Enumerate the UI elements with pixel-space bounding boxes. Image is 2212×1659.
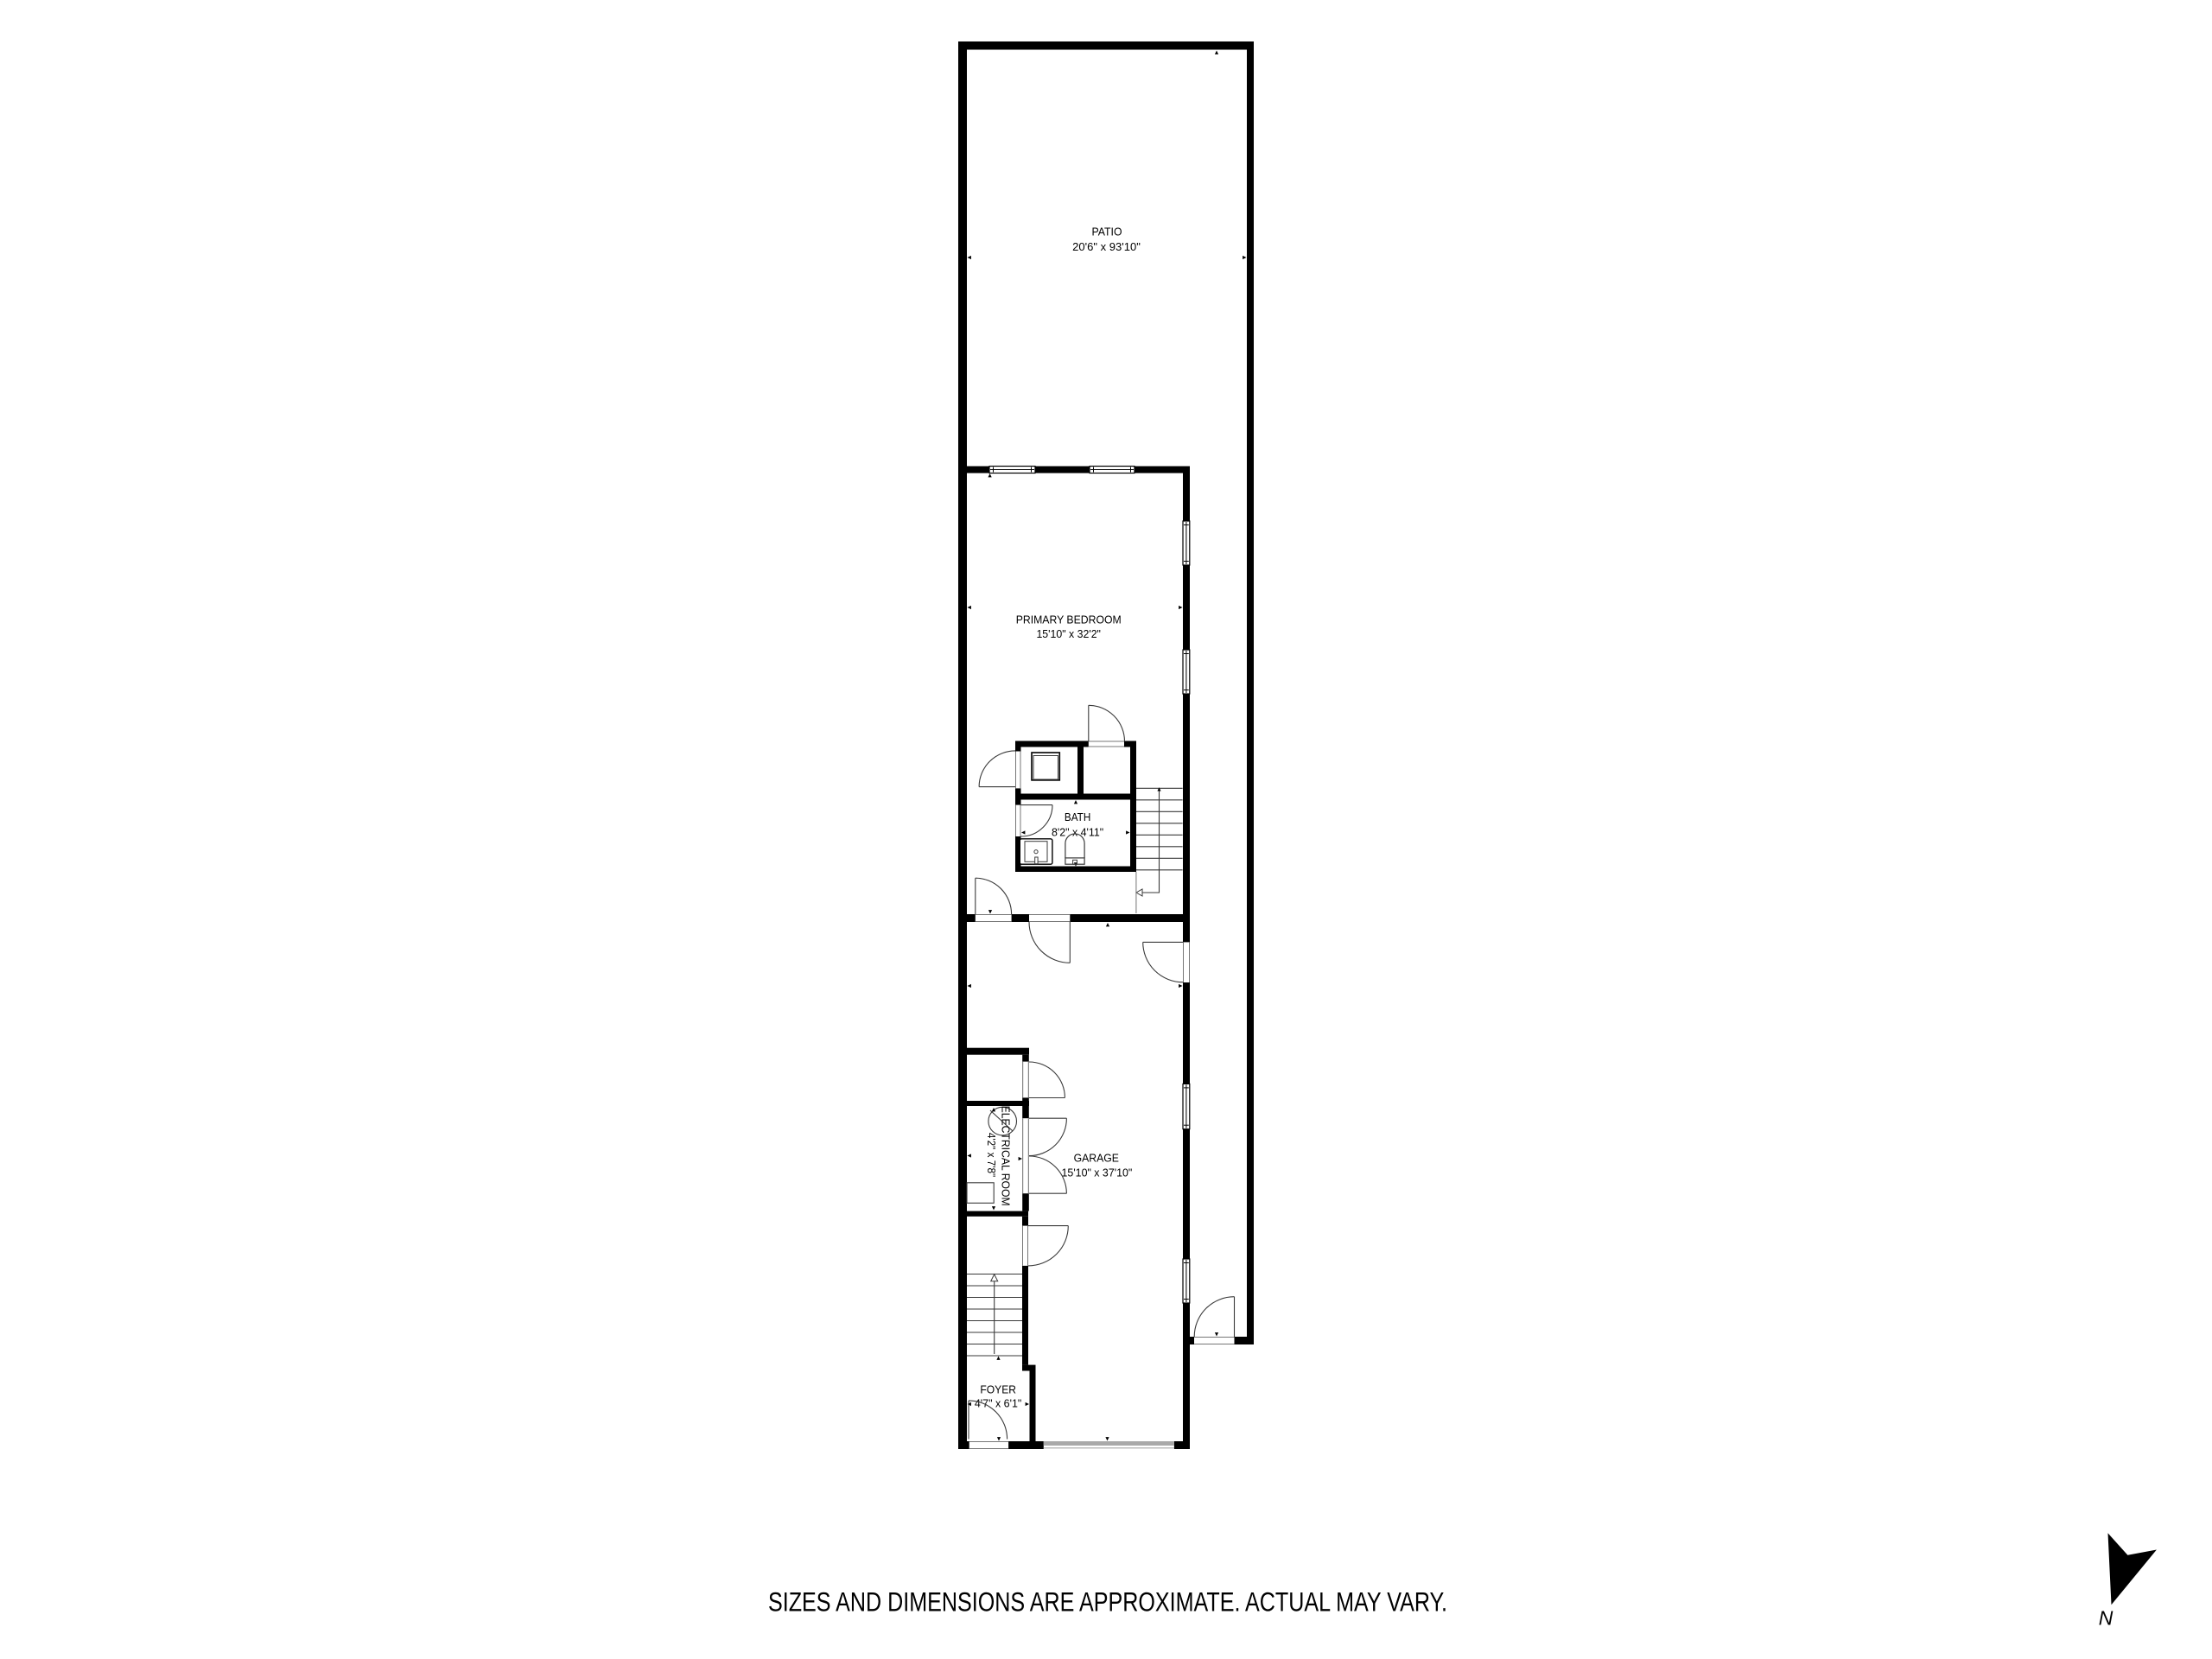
svg-text:N: N [2099,1606,2113,1629]
svg-text:4'2" x 7'8": 4'2" x 7'8" [985,1133,998,1178]
svg-text:15'10" x 37'10": 15'10" x 37'10" [1062,1166,1133,1179]
svg-text:PATIO: PATIO [1092,226,1122,238]
svg-text:20'6" x 93'10": 20'6" x 93'10" [1072,240,1141,253]
svg-text:FOYER: FOYER [980,1383,1016,1396]
svg-text:SIZES AND DIMENSIONS ARE APPRO: SIZES AND DIMENSIONS ARE APPROXIMATE. AC… [768,1586,1447,1618]
svg-text:PRIMARY BEDROOM: PRIMARY BEDROOM [1016,613,1122,626]
svg-text:GARAGE: GARAGE [1074,1151,1120,1164]
svg-text:BATH: BATH [1065,810,1090,823]
svg-text:8'2" x 4'11": 8'2" x 4'11" [1052,826,1104,839]
svg-text:15'10" x 32'2": 15'10" x 32'2" [1036,627,1101,640]
svg-text:ELECTRICAL ROOM: ELECTRICAL ROOM [1000,1106,1013,1206]
